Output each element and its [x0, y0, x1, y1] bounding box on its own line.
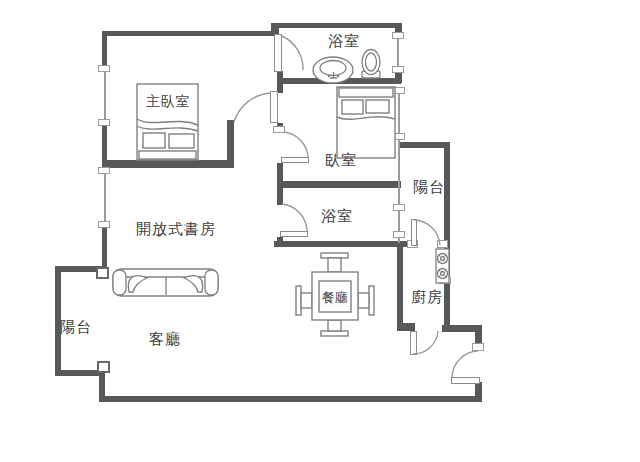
- window-tick: [392, 32, 404, 39]
- window: [398, 88, 400, 243]
- door-leaf-master-bedroom: [270, 91, 278, 123]
- room-label-kitchen: 廚房: [411, 290, 443, 305]
- room-label-bathroom-middle: 浴室: [321, 209, 353, 224]
- wall: [475, 382, 482, 402]
- window-tick: [392, 66, 404, 73]
- toilet-icon: [362, 50, 380, 79]
- wall: [271, 23, 401, 28]
- window-tick: [439, 277, 451, 284]
- wall: [102, 228, 107, 269]
- room-label-bedroom: 臥室: [325, 153, 357, 168]
- wall: [274, 241, 413, 247]
- wall: [397, 241, 403, 325]
- window-tick: [98, 65, 110, 72]
- door-arc-bedroom: [284, 132, 308, 157]
- window-tick: [98, 167, 110, 174]
- room-label-dining-room: 餐廳: [322, 291, 348, 304]
- wall: [444, 142, 450, 327]
- wall: [102, 31, 274, 36]
- wall: [277, 163, 283, 205]
- room-label-bathroom-top: 浴室: [328, 34, 360, 49]
- door-arc-master-bedroom: [234, 93, 271, 122]
- window: [104, 172, 106, 226]
- door-leaf-kitchen: [410, 331, 417, 355]
- wall: [400, 142, 450, 148]
- door-jamb: [437, 240, 448, 248]
- door-arc-ensuite: [282, 36, 303, 70]
- wall: [102, 160, 234, 168]
- door-leaf-balcony-kitchen: [411, 219, 417, 246]
- room-label-balcony-right: 陽台: [413, 180, 445, 195]
- door-leaf-entrance: [451, 377, 480, 384]
- wall: [55, 266, 102, 272]
- fixtures-layer: [0, 0, 640, 462]
- room-label-balcony-left: 陽台: [60, 320, 92, 335]
- room-label-study: 開放式書房: [136, 222, 216, 237]
- window-tick: [393, 87, 405, 94]
- bedroom-bed-icon: [337, 87, 395, 158]
- door-leaf-bedroom: [281, 157, 309, 163]
- door-leaf-ensuite: [274, 34, 282, 72]
- floor-plan: 浴室 主臥室 臥室 陽台 浴室 開放式書房 餐廳 廚房 陽台 客廳: [0, 0, 640, 462]
- wall: [99, 396, 482, 402]
- room-label-living-room: 客廳: [149, 332, 181, 347]
- window-tick: [393, 204, 405, 211]
- sofa-icon: [113, 269, 218, 296]
- room-label-master-bedroom: 主臥室: [146, 94, 190, 108]
- wall: [277, 71, 283, 83]
- wall: [227, 120, 234, 168]
- wall: [277, 237, 283, 247]
- door-jamb: [472, 343, 484, 351]
- door-jamb: [273, 126, 285, 133]
- wall: [55, 370, 103, 376]
- wall: [277, 78, 401, 84]
- window-tick: [393, 133, 405, 140]
- door-arc-entrance: [452, 351, 478, 377]
- wall: [397, 323, 415, 331]
- door-arc-bathroom-middle: [282, 204, 307, 231]
- wall: [277, 181, 401, 188]
- door-leaf-bathroom-middle: [280, 231, 308, 237]
- wall-post: [96, 267, 109, 279]
- window: [104, 68, 106, 126]
- window-tick: [98, 221, 110, 228]
- window-tick: [393, 231, 405, 238]
- window-tick: [98, 119, 110, 126]
- wall-post: [97, 361, 110, 373]
